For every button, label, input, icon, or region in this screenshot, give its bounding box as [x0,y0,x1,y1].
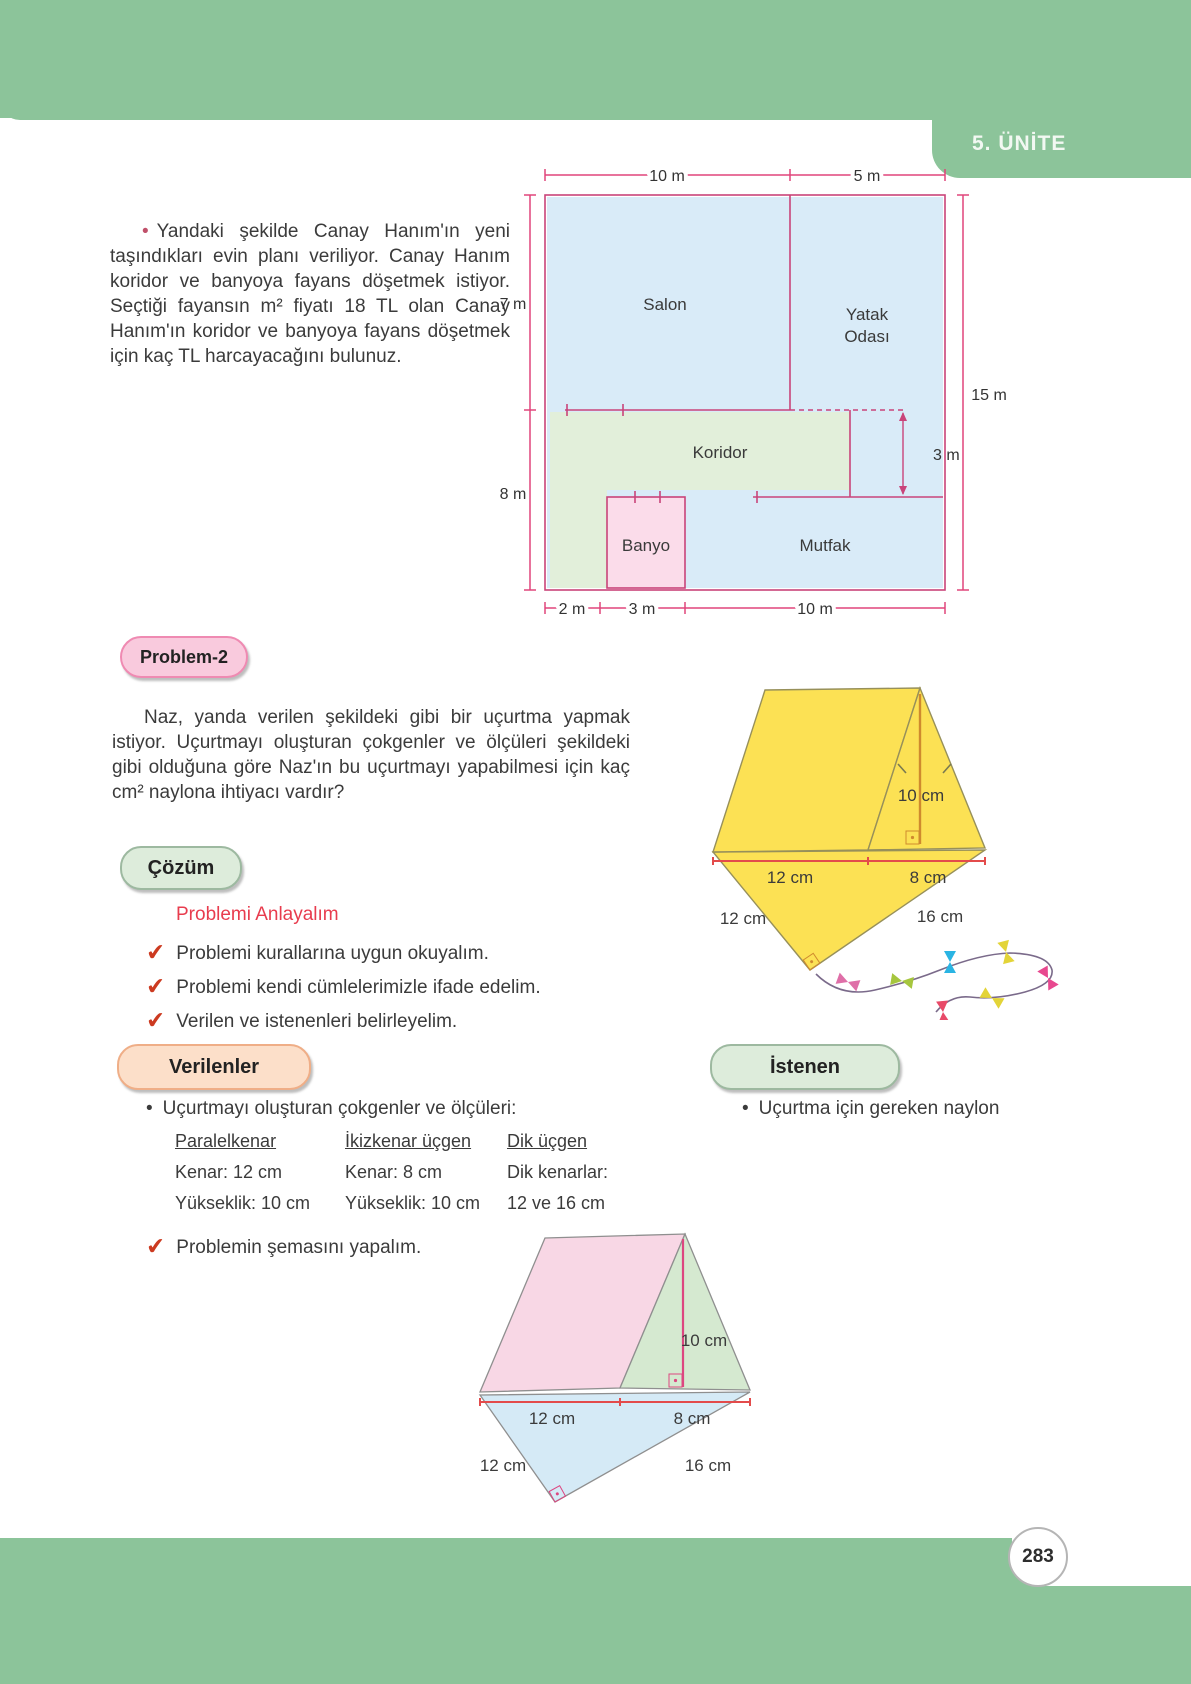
checklist-item: ✔ Verilen ve istenenleri belirleyelim. [146,1008,541,1035]
kite-schema-figure: 10 cm 12 cm 8 cm 12 cm 16 cm [440,1205,860,1525]
dim-label-left-upper: 7 m [500,296,527,313]
page-number-badge: 283 [1008,1527,1068,1587]
schema-side-right-label: 16 cm [685,1456,731,1475]
dim-label-bottom-1: 2 m [559,601,586,618]
problem2-paragraph: Naz, yanda verilen şekildeki gibi bir uç… [112,705,630,805]
given-intro-row: •Uçurtmayı oluşturan çokgenler ve ölçüle… [146,1098,516,1120]
schema-height-label: 10 cm [681,1331,727,1350]
schema-step: Problemin şemasını yapalım. [176,1234,421,1261]
bullet-icon: • [146,1098,153,1119]
room-label-yatak-2: Odası [844,327,889,346]
dim-label-top-left: 10 m [649,168,685,185]
kite-base-left-label: 12 cm [767,868,813,887]
checklist-item: ✔ Problemi kurallarına uygun okuyalım. [146,940,541,967]
dim-label-bottom-3: 10 m [797,601,833,618]
column-row: Kenar: 8 cm [345,1157,480,1188]
checklist-item: ✔ Problemi kendi cümlelerimizle ifade ed… [146,974,541,1001]
check-icon: ✔ [145,939,166,964]
column-row: Kenar: 12 cm [175,1157,310,1188]
top-green-band [0,0,1191,120]
dim-label-left-lower: 8 m [500,486,527,503]
column-header: Paralelkenar [175,1126,310,1157]
tail-bows [836,940,1059,1020]
room-label-mutfak: Mutfak [799,536,851,555]
schema-base-right-label: 8 cm [674,1409,711,1428]
kite-side-left-label: 12 cm [720,909,766,928]
dim-label-top-right: 5 m [854,168,881,185]
wanted-badge-label: İstenen [770,1056,840,1079]
wanted-row: •Uçurtma için gereken naylon [742,1098,999,1120]
room-label-banyo: Banyo [622,536,670,555]
dim-label-inner: 3 m [933,447,960,464]
check-icon: ✔ [145,1007,166,1032]
schema-side-left-label: 12 cm [480,1456,526,1475]
schema-base-left-label: 12 cm [529,1409,575,1428]
bow-yellow-icon [997,940,1014,964]
bow-green-icon [890,973,914,989]
given-intro: Uçurtmayı oluşturan çokgenler ve ölçüler… [163,1098,517,1119]
column-header: İkizkenar üçgen [345,1126,480,1157]
column-row: Yükseklik: 10 cm [175,1188,310,1219]
given-column-paralelkenar: Paralelkenar Kenar: 12 cm Yükseklik: 10 … [175,1126,310,1219]
check-icon: ✔ [145,1233,166,1258]
problem1-text: Yandaki şekilde Canay Hanım'ın yeni taşı… [110,221,510,367]
room-label-salon: Salon [643,295,686,314]
kite-height-label: 10 cm [898,786,944,805]
dim-label-right: 15 m [971,387,1007,404]
page-number: 283 [1022,1546,1054,1568]
kite-base-right-label: 8 cm [910,868,947,887]
dim-label-bottom-2: 3 m [629,601,656,618]
solution-badge-label: Çözüm [148,857,215,880]
wanted-item: Uçurtma için gereken naylon [759,1098,1000,1119]
understanding-heading: Problemi Anlayalım [176,904,339,926]
solution-checklist: ✔ Problemi kurallarına uygun okuyalım. ✔… [146,940,541,1042]
solution-badge: Çözüm [120,846,242,890]
bullet-icon: • [142,221,149,242]
schema-step-row: ✔ Problemin şemasını yapalım. [146,1234,421,1261]
check-icon: ✔ [145,973,166,998]
problem2-badge-label: Problem-2 [140,647,228,668]
given-badge: Verilenler [117,1044,311,1090]
wanted-badge: İstenen [710,1044,900,1090]
given-badge-label: Verilenler [169,1056,259,1079]
koridor-strip [550,490,607,588]
bullet-icon: • [742,1098,749,1119]
column-header: Dik üçgen [507,1126,608,1157]
textbook-page: 5. ÜNİTE 283 •Yandaki şekilde Canay Hanı… [0,0,1191,1684]
room-label-yatak-1: Yatak [846,305,889,324]
problem1-paragraph: •Yandaki şekilde Canay Hanım'ın yeni taş… [110,219,510,369]
bow-blue-icon [944,951,956,973]
kite-side-right-label: 16 cm [917,907,963,926]
floor-plan-figure: 10 m 5 m 7 m 8 m 15 m 3 m 2 m 3 m 10 m S… [495,150,1015,630]
kite-figure: 10 cm 12 cm 8 cm 12 cm 16 cm [640,640,1100,1020]
room-label-koridor: Koridor [693,443,748,462]
problem2-badge: Problem-2 [120,636,248,678]
column-row: Dik kenarlar: [507,1157,608,1188]
